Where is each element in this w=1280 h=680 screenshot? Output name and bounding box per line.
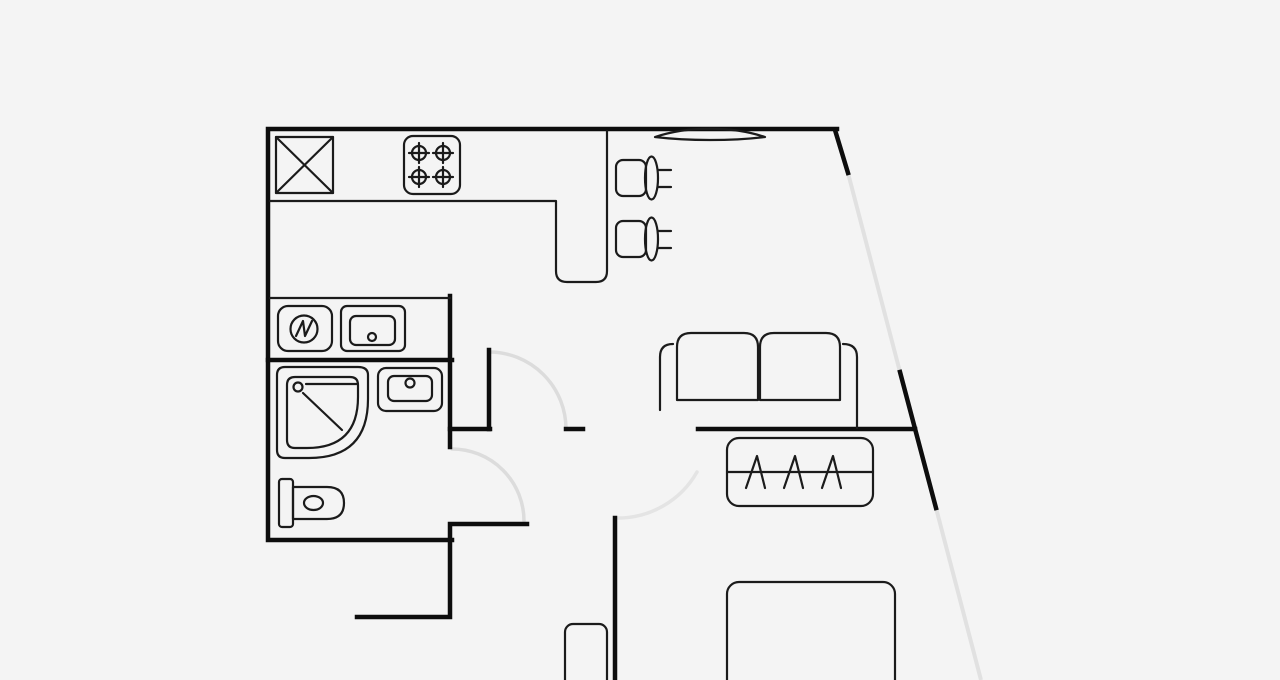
floor-plan-canvas [0, 0, 1280, 680]
floor-plan-drawing [0, 0, 1280, 680]
background [0, 0, 1280, 680]
